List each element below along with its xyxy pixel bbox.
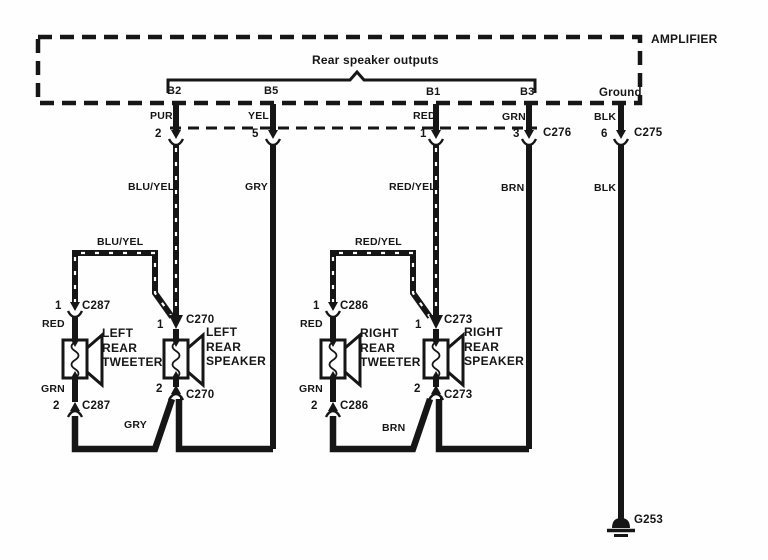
rt-connector-top: C286 — [340, 301, 368, 313]
outputs-label: Rear speaker outputs — [312, 54, 439, 66]
wire-color-grn: GRN — [502, 112, 526, 123]
conn-pin-5: 5 — [252, 129, 259, 141]
lt-connector-top: C287 — [82, 301, 110, 313]
ls-name-1: LEFT — [206, 325, 266, 340]
ls-return-label: GRY — [124, 420, 147, 431]
left-tweeter-name: LEFT REAR TWEETER — [102, 326, 163, 370]
wire-color-red: RED — [413, 111, 436, 122]
wire-color-blk: BLK — [594, 112, 616, 123]
right-speaker-name: RIGHT REAR SPEAKER — [464, 325, 524, 369]
lt-pin-top: 1 — [55, 301, 62, 313]
wiring-artwork — [0, 0, 768, 560]
pin-b2-label: B2 — [167, 86, 181, 97]
ls-connector-bottom: C270 — [186, 390, 214, 402]
ls-pin-bottom: 2 — [156, 384, 163, 396]
rs-name-3: SPEAKER — [464, 354, 524, 369]
harness-blu-yel: BLU/YEL — [128, 182, 174, 193]
rs-name-1: RIGHT — [464, 325, 524, 340]
conn-pin-6: 6 — [601, 129, 608, 141]
conn-pin-3: 3 — [513, 129, 520, 141]
left-speaker-name: LEFT REAR SPEAKER — [206, 325, 266, 369]
rt-name-2: REAR — [360, 341, 421, 356]
conn-pin-2: 2 — [155, 129, 162, 141]
ground-pin-label: Ground — [599, 88, 642, 100]
harness-brn: BRN — [501, 183, 524, 194]
rt-connector-bottom: C286 — [340, 401, 368, 413]
conn-pin-1: 1 — [420, 129, 427, 141]
wire-color-pur: PUR — [150, 111, 173, 122]
ls-name-3: SPEAKER — [206, 354, 266, 369]
outputs-bracket — [168, 72, 535, 93]
ground-id-label: G253 — [634, 515, 663, 527]
rs-pin-bottom: 2 — [414, 384, 421, 396]
lt-name-1: LEFT — [102, 326, 163, 341]
amplifier-box — [38, 37, 640, 103]
rs-return-label: BRN — [382, 423, 405, 434]
right-tweeter-symbol — [321, 335, 360, 385]
rt-wire-out: GRN — [299, 384, 323, 395]
harness-gry: GRY — [245, 182, 268, 193]
lt-pin-bottom: 2 — [53, 401, 60, 413]
left-speaker-symbol — [164, 335, 203, 385]
left-speaker-return — [179, 396, 273, 449]
amplifier-label: AMPLIFIER — [651, 33, 717, 45]
right-speaker-return — [439, 396, 529, 449]
right-speaker-symbol — [424, 335, 463, 385]
ls-pin-top: 1 — [157, 320, 164, 332]
wiring-diagram: AMPLIFIER Rear speaker outputs Ground B2… — [0, 0, 768, 560]
rs-name-2: REAR — [464, 340, 524, 355]
pin-b1-label: B1 — [426, 87, 440, 98]
rs-pin-top: 1 — [415, 320, 422, 332]
rs-connector-bottom: C273 — [444, 390, 472, 402]
ls-name-2: REAR — [206, 340, 266, 355]
rt-pin-bottom: 2 — [311, 401, 318, 413]
lt-wire-out: GRN — [41, 384, 65, 395]
rt-name-3: TWEETER — [360, 355, 421, 370]
rt-wire-in: RED — [300, 319, 323, 330]
rt-pin-top: 1 — [313, 301, 320, 313]
lt-name-3: TWEETER — [102, 355, 163, 370]
lt-connector-bottom: C287 — [82, 401, 110, 413]
wire-color-yel: YEL — [248, 111, 269, 122]
lt-wire-in: RED — [42, 319, 65, 330]
lt-name-2: REAR — [102, 341, 163, 356]
pin-b3-label: B3 — [520, 87, 534, 98]
left-tweeter-symbol — [63, 335, 102, 385]
connector-symbols-up — [68, 385, 443, 417]
striped-wires — [75, 144, 436, 318]
harness-blk: BLK — [594, 183, 616, 194]
ground-symbol — [607, 518, 635, 536]
left-branch-label: BLU/YEL — [97, 237, 143, 248]
right-tweeter-name: RIGHT REAR TWEETER — [360, 326, 421, 370]
connector-c276-label: C276 — [543, 128, 571, 140]
harness-red-yel: RED/YEL — [389, 182, 436, 193]
pin-b5-label: B5 — [264, 86, 278, 97]
right-branch-label: RED/YEL — [355, 237, 402, 248]
connector-c275-label: C275 — [634, 128, 662, 140]
rt-name-1: RIGHT — [360, 326, 421, 341]
